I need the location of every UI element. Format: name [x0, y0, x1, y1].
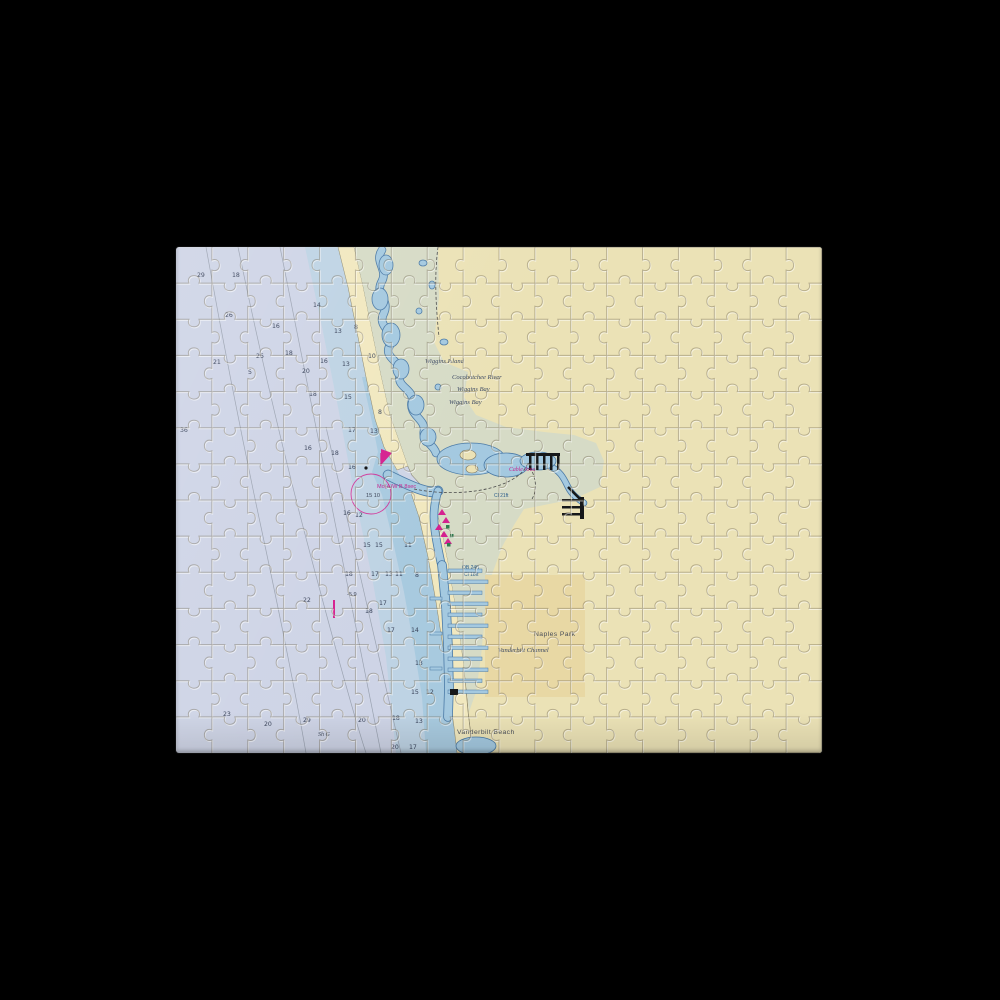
depth-sounding: 13 — [342, 361, 350, 368]
depth-sounding: 14 — [411, 627, 419, 634]
photo-background: 2918261614138212618161352010181581713161… — [0, 0, 1000, 1000]
depth-sounding: 20 — [264, 721, 272, 728]
map-label-cl-21ft: Cl 21ft — [494, 493, 509, 499]
pier-symbol — [450, 689, 458, 695]
jigsaw-puzzle: 2918261614138212618161352010181581713161… — [176, 247, 822, 753]
depth-sounding: 18 — [232, 272, 240, 279]
map-label-sh-g: Sh G — [318, 732, 331, 738]
depth-sounding: 15 — [344, 394, 352, 401]
square-daybeacon-icon — [447, 543, 451, 547]
depth-sounding: 18 — [331, 450, 339, 457]
map-label-15-10: 15 10 — [366, 493, 380, 499]
depth-sounding: 16 — [304, 445, 312, 452]
depth-sounding: 15 — [375, 542, 383, 549]
depth-sounding: 16 — [272, 323, 280, 330]
depth-sounding: 17 — [409, 744, 417, 751]
depth-sounding: 21 — [213, 359, 221, 366]
depth-sounding: 13 — [334, 328, 342, 335]
depth-sounding: 16 — [320, 358, 328, 365]
map-label-mo-a-w-b-8sec: Mo(A)W B 8sec — [377, 484, 416, 490]
depth-sounding: 15 — [411, 689, 419, 696]
square-daybeacon-icon — [446, 525, 450, 529]
depth-sounding: 13 — [415, 660, 423, 667]
map-label-wiggins-bay: Wiggins Bay — [449, 399, 482, 406]
depth-sounding: 8 — [378, 409, 382, 416]
depth-sounding: 5 — [248, 369, 252, 376]
depth-sounding: 18 — [392, 715, 400, 722]
map-label-cable-area: Cable Area — [509, 467, 535, 473]
depth-sounding: 17 — [371, 571, 379, 578]
buoy-position-dot — [364, 466, 367, 469]
depth-sounding: 22 — [303, 597, 311, 604]
nautical-chart: 2918261614138212618161352010181581713161… — [176, 247, 822, 753]
depth-sounding: 20 — [302, 368, 310, 375]
depth-sounding: 15 — [363, 542, 371, 549]
depth-sounding: 13 — [415, 718, 423, 725]
